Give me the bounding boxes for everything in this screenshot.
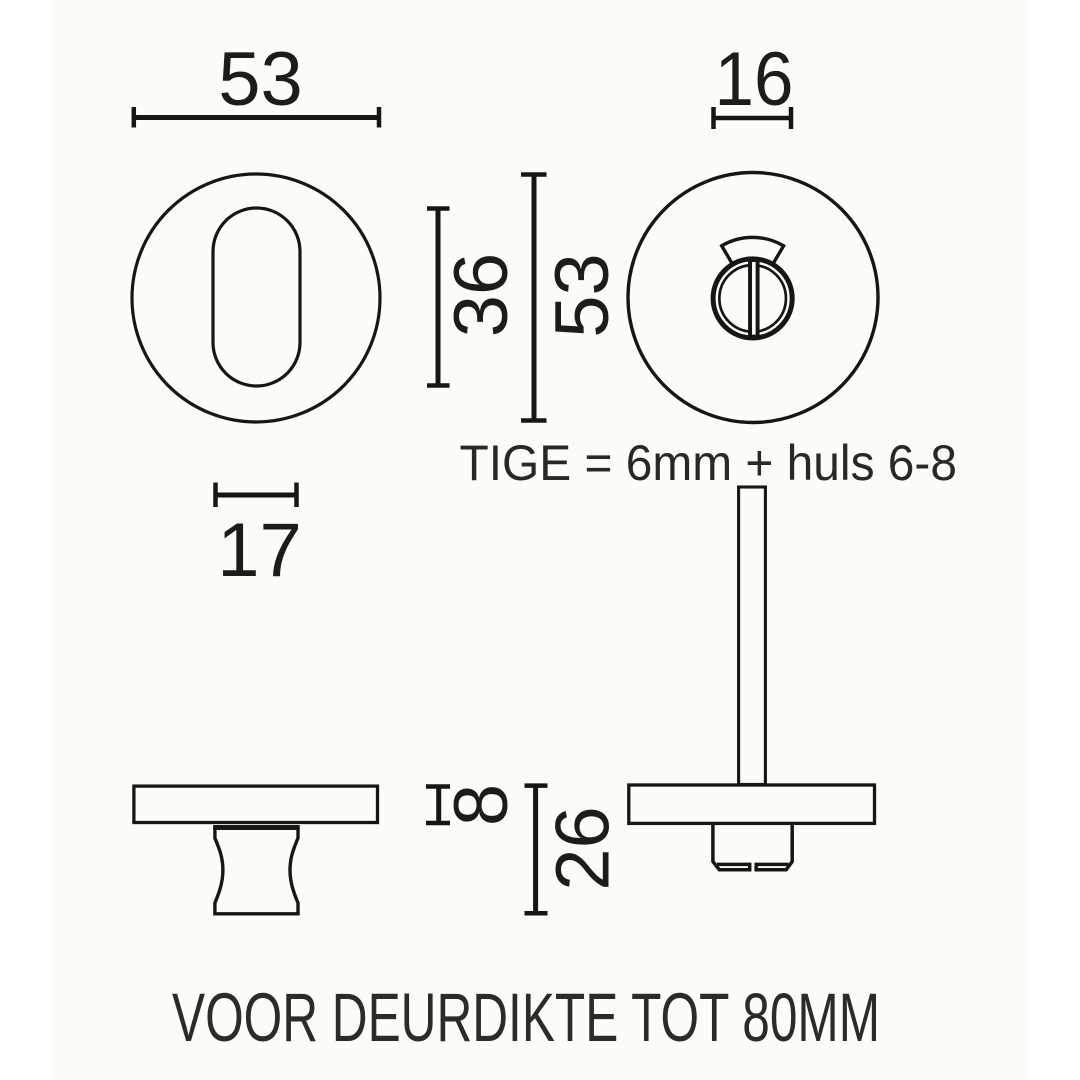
- svg-text:16: 16: [715, 37, 794, 122]
- svg-text:TIGE = 6mm + huls 6-8: TIGE = 6mm + huls 6-8: [460, 435, 958, 491]
- svg-text:53: 53: [218, 37, 303, 122]
- svg-text:8: 8: [439, 784, 524, 826]
- svg-text:53: 53: [540, 253, 625, 338]
- svg-text:VOOR DEURDIKTE TOT 80MM: VOOR DEURDIKTE TOT 80MM: [172, 979, 880, 1056]
- svg-text:36: 36: [439, 253, 524, 338]
- svg-text:26: 26: [541, 806, 626, 891]
- svg-text:17: 17: [217, 508, 302, 593]
